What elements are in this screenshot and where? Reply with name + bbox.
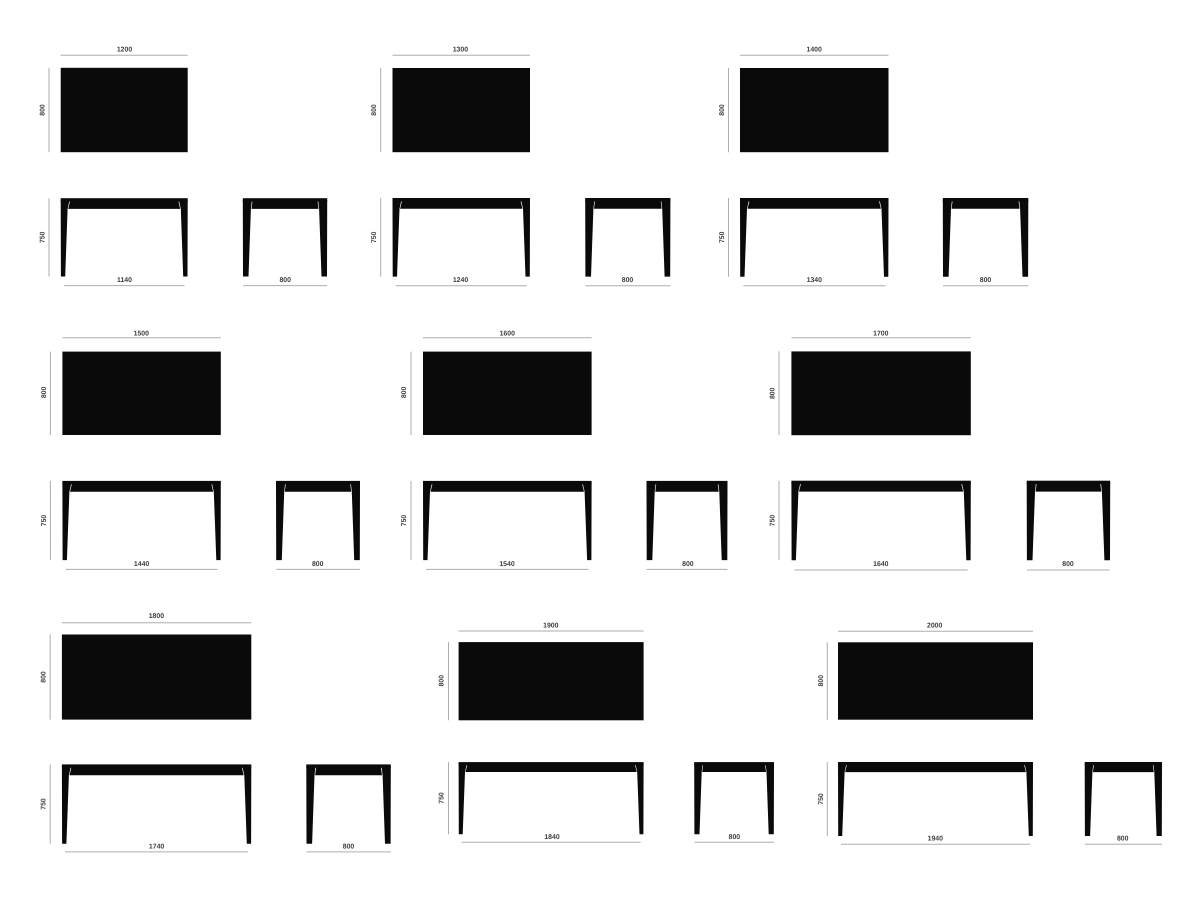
svg-text:750: 750 — [40, 231, 47, 243]
svg-text:1900: 1900 — [543, 623, 558, 630]
svg-text:1640: 1640 — [873, 561, 888, 568]
svg-text:750: 750 — [41, 515, 48, 527]
svg-text:800: 800 — [719, 104, 726, 116]
svg-text:1400: 1400 — [807, 46, 822, 53]
svg-text:1340: 1340 — [807, 277, 822, 284]
svg-text:750: 750 — [818, 793, 825, 805]
svg-text:800: 800 — [438, 675, 445, 687]
svg-text:750: 750 — [401, 515, 408, 527]
svg-text:1300: 1300 — [453, 46, 468, 53]
svg-text:1600: 1600 — [500, 331, 515, 338]
svg-text:1700: 1700 — [873, 331, 888, 338]
svg-text:800: 800 — [40, 104, 47, 116]
svg-text:1240: 1240 — [453, 277, 468, 284]
svg-text:1800: 1800 — [149, 613, 164, 620]
svg-text:800: 800 — [1062, 561, 1074, 568]
svg-text:800: 800 — [343, 843, 355, 850]
svg-text:2000: 2000 — [927, 623, 942, 630]
svg-text:800: 800 — [312, 561, 324, 568]
svg-text:750: 750 — [371, 231, 378, 243]
svg-text:800: 800 — [769, 387, 776, 399]
svg-text:800: 800 — [980, 277, 992, 284]
svg-text:800: 800 — [279, 277, 291, 284]
svg-text:1540: 1540 — [499, 561, 514, 568]
svg-text:800: 800 — [682, 561, 694, 568]
svg-text:800: 800 — [41, 386, 48, 398]
svg-text:1140: 1140 — [117, 277, 132, 284]
svg-text:800: 800 — [818, 675, 825, 687]
svg-text:800: 800 — [41, 671, 48, 683]
svg-text:750: 750 — [41, 798, 48, 810]
svg-text:1940: 1940 — [928, 836, 943, 843]
svg-text:800: 800 — [401, 386, 408, 398]
svg-text:800: 800 — [622, 277, 634, 284]
svg-text:1440: 1440 — [134, 561, 149, 568]
svg-text:800: 800 — [729, 834, 741, 841]
svg-text:750: 750 — [719, 231, 726, 243]
svg-text:1200: 1200 — [117, 46, 132, 53]
svg-text:1740: 1740 — [149, 843, 164, 850]
svg-text:1500: 1500 — [134, 331, 149, 338]
svg-text:800: 800 — [1117, 836, 1129, 843]
svg-text:750: 750 — [769, 515, 776, 527]
svg-text:800: 800 — [371, 104, 378, 116]
svg-text:750: 750 — [438, 792, 445, 804]
svg-text:1840: 1840 — [544, 834, 559, 841]
